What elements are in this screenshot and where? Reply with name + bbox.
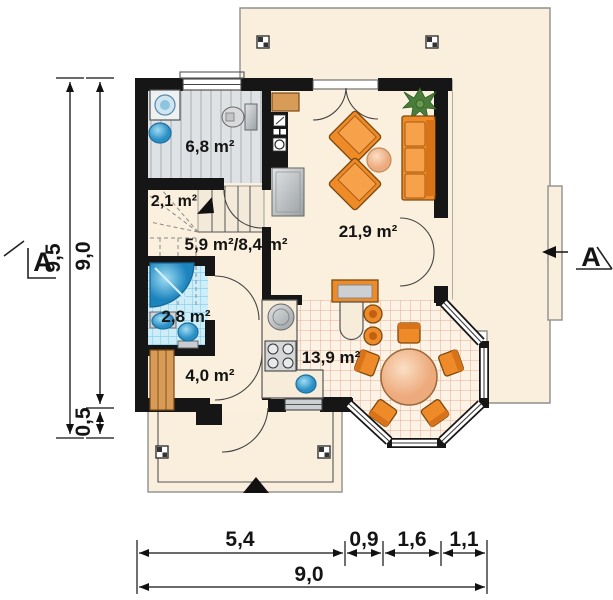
kitchen-cabinet <box>272 93 299 111</box>
room-label-wardrobe: 4,0 m² <box>185 366 234 385</box>
dining-table <box>381 349 437 405</box>
utility-window-sill <box>180 72 244 78</box>
wardrobe-closet <box>150 350 174 410</box>
dim-bottom-1: 5,4 <box>225 528 255 551</box>
dim-bottom-3: 1,6 <box>397 528 426 551</box>
room-label-hall: 5,9 m²/8,4 m² <box>185 235 288 254</box>
floor-plan-page: 6,8 m² 2,1 m² 5,9 m²/8,4 m² 21,9 m² 2,8 … <box>0 0 613 600</box>
terrace-french-door <box>313 80 378 89</box>
room-label-stairs: 2,1 m² <box>151 193 197 210</box>
entry-porch <box>148 410 342 492</box>
room-label-living: 21,9 m² <box>339 222 398 241</box>
floor-plan-drawing: 6,8 m² 2,1 m² 5,9 m²/8,4 m² 21,9 m² 2,8 … <box>0 0 613 600</box>
stove <box>265 341 296 371</box>
dim-left-inner: 9,0 <box>72 241 95 270</box>
dim-left-total: 9,5 <box>42 243 65 273</box>
kitchen-boiler <box>268 304 294 330</box>
dim-left-porch: 0,5 <box>72 407 95 437</box>
utility-sink <box>149 123 171 143</box>
sofa <box>402 116 435 200</box>
dim-bottom-total: 9,0 <box>294 563 323 586</box>
kitchen-sink <box>296 375 316 393</box>
bar-stool <box>364 327 382 345</box>
dim-bottom-2: 0,9 <box>349 528 378 551</box>
room-label-kitchen: 13,9 m² <box>302 348 361 367</box>
washing-machine <box>150 90 180 120</box>
coffee-table <box>367 148 391 172</box>
room-label-utility: 6,8 m² <box>185 137 234 156</box>
room-label-bathroom: 2,8 m² <box>161 307 210 326</box>
kitchen-counter-top <box>272 168 304 216</box>
section-letter: A <box>581 242 601 272</box>
dim-bottom-4: 1,1 <box>449 528 479 551</box>
bar-stool <box>364 305 382 323</box>
bathroom-toilet <box>178 323 198 348</box>
